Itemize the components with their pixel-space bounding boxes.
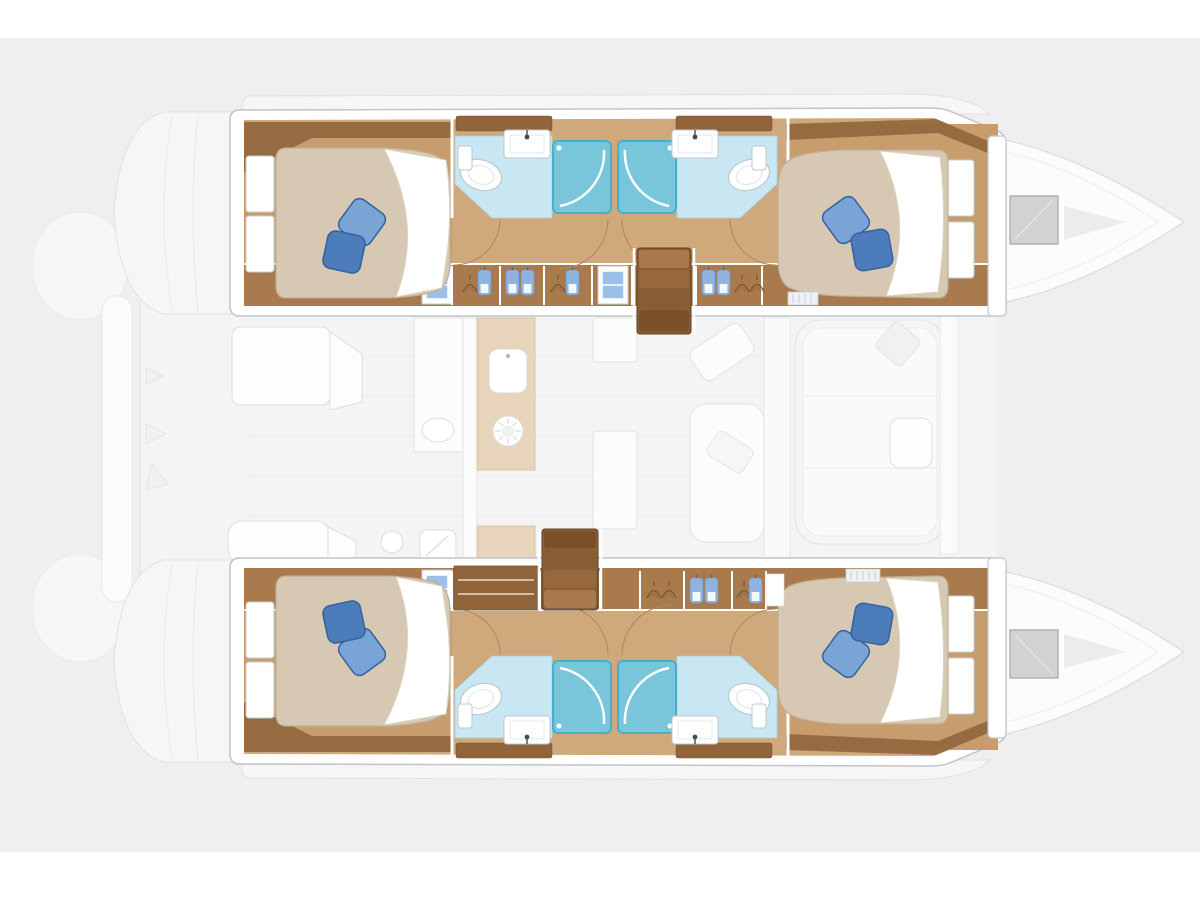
galley-worktop	[477, 318, 535, 470]
companionway-wall	[764, 318, 790, 558]
dinette-table	[593, 431, 637, 529]
hull-window	[598, 266, 628, 304]
shelf-unit	[454, 566, 538, 610]
band-cell	[766, 574, 784, 606]
companionway-stairs	[539, 529, 601, 610]
vent-grille	[788, 292, 818, 305]
saloon-sofa	[690, 404, 764, 542]
aft-crossbeam	[102, 296, 132, 602]
galley-worktop-aft	[477, 526, 535, 560]
cockpit-table	[232, 327, 330, 405]
floor-plan-page	[0, 0, 1200, 900]
vent-grille	[846, 569, 880, 582]
round-sink	[422, 418, 454, 442]
galley-divider	[463, 318, 477, 560]
catamaran-floor-plan	[0, 0, 1200, 900]
faucet-icon	[506, 354, 510, 358]
forward-table	[890, 418, 932, 468]
stove-icon	[493, 416, 523, 446]
companionway-stairs	[634, 248, 694, 334]
forward-crossbeam	[940, 314, 958, 554]
cockpit-bench	[228, 521, 330, 563]
bar-stool	[381, 531, 403, 553]
forward-cockpit	[795, 320, 945, 544]
dinette-column	[593, 318, 637, 362]
